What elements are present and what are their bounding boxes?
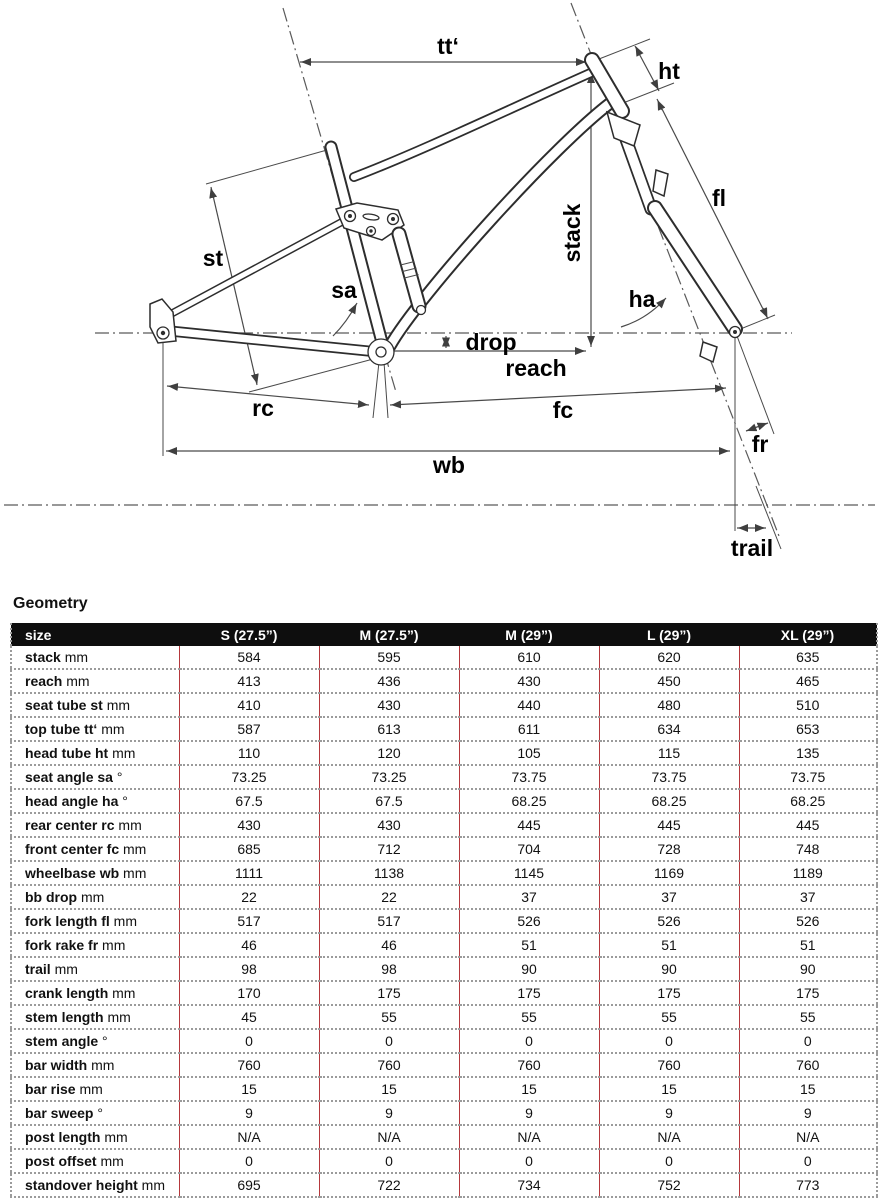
table-row: standover height mm695722734752773 (11, 1173, 877, 1197)
cell-value: 620 (599, 646, 739, 669)
dimension-lines (163, 39, 781, 549)
table-row: seat angle sa °73.2573.2573.7573.7573.75 (11, 765, 877, 789)
cell-value: 510 (739, 693, 877, 717)
column-header: S (27.5”) (179, 623, 319, 646)
row-label: fork rake fr mm (11, 933, 179, 957)
cell-value: 175 (599, 981, 739, 1005)
label-stack: stack (559, 203, 585, 262)
cell-value: 55 (319, 1005, 459, 1029)
shock-eyelet (417, 306, 426, 315)
table-row: crank length mm170175175175175 (11, 981, 877, 1005)
cell-value: 0 (179, 1149, 319, 1173)
cell-value: 734 (459, 1173, 599, 1197)
cell-value: 15 (599, 1077, 739, 1101)
table-row: stem angle °00000 (11, 1029, 877, 1053)
cell-value: 170 (179, 981, 319, 1005)
cell-value: 440 (459, 693, 599, 717)
table-row: post length mmN/AN/AN/AN/AN/A (11, 1125, 877, 1149)
table-row: head angle ha °67.567.568.2568.2568.25 (11, 789, 877, 813)
cell-value: 55 (739, 1005, 877, 1029)
cell-value: 0 (319, 1029, 459, 1053)
cell-value: 595 (319, 646, 459, 669)
cell-value: 105 (459, 741, 599, 765)
cell-value: 73.25 (319, 765, 459, 789)
cell-value: 722 (319, 1173, 459, 1197)
cell-value: 55 (599, 1005, 739, 1029)
cell-value: 430 (319, 693, 459, 717)
cell-value: 46 (319, 933, 459, 957)
row-label: fork length fl mm (11, 909, 179, 933)
row-label: head angle ha ° (11, 789, 179, 813)
cell-value: N/A (179, 1125, 319, 1149)
bike-geometry-drawing: tt‘ ht fl stack st sa ha drop reach rc f… (0, 0, 878, 585)
cell-value: 517 (319, 909, 459, 933)
cell-value: 9 (179, 1101, 319, 1125)
cell-value: 90 (459, 957, 599, 981)
cell-value: 413 (179, 669, 319, 693)
cell-value: 526 (739, 909, 877, 933)
cell-value: 748 (739, 837, 877, 861)
table-row: post offset mm00000 (11, 1149, 877, 1173)
cell-value: 1169 (599, 861, 739, 885)
row-label: rear center rc mm (11, 813, 179, 837)
cell-value: 68.25 (739, 789, 877, 813)
cell-value: 445 (459, 813, 599, 837)
table-row: bar rise mm1515151515 (11, 1077, 877, 1101)
cell-value: 9 (319, 1101, 459, 1125)
row-label: standover height mm (11, 1173, 179, 1197)
cell-value: 73.25 (179, 765, 319, 789)
row-label: front center fc mm (11, 837, 179, 861)
column-header: L (29”) (599, 623, 739, 646)
cell-value: 465 (739, 669, 877, 693)
cell-value: 634 (599, 717, 739, 741)
row-label: post length mm (11, 1125, 179, 1149)
label-rear-center: rc (252, 395, 274, 421)
table-row: head tube ht mm110120105115135 (11, 741, 877, 765)
table-body: stack mm584595610620635reach mm413436430… (11, 646, 877, 1197)
cell-value: N/A (459, 1125, 599, 1149)
table-row: bar sweep °99999 (11, 1101, 877, 1125)
cell-value: 760 (739, 1053, 877, 1077)
row-label: post offset mm (11, 1149, 179, 1173)
cell-value: 0 (459, 1149, 599, 1173)
label-trail: trail (731, 535, 773, 561)
row-label: bar width mm (11, 1053, 179, 1077)
cell-value: 0 (599, 1149, 739, 1173)
label-fork-length: fl (712, 185, 726, 211)
cell-value: 0 (179, 1029, 319, 1053)
cell-value: 68.25 (459, 789, 599, 813)
cell-value: 436 (319, 669, 459, 693)
cell-value: 752 (599, 1173, 739, 1197)
cell-value: 526 (459, 909, 599, 933)
cell-value: 445 (599, 813, 739, 837)
cell-value: 728 (599, 837, 739, 861)
cell-value: 55 (459, 1005, 599, 1029)
label-head-tube: ht (658, 58, 680, 84)
cell-value: 98 (179, 957, 319, 981)
cell-value: 712 (319, 837, 459, 861)
cell-value: 1138 (319, 861, 459, 885)
cell-value: 584 (179, 646, 319, 669)
column-header: M (29”) (459, 623, 599, 646)
cell-value: 175 (739, 981, 877, 1005)
table-row: reach mm413436430450465 (11, 669, 877, 693)
cell-value: 45 (179, 1005, 319, 1029)
cell-value: 51 (459, 933, 599, 957)
cell-value: 430 (179, 813, 319, 837)
cell-value: 98 (319, 957, 459, 981)
cell-value: 46 (179, 933, 319, 957)
cell-value: 587 (179, 717, 319, 741)
row-label: trail mm (11, 957, 179, 981)
cell-value: 760 (179, 1053, 319, 1077)
row-label: wheelbase wb mm (11, 861, 179, 885)
column-header: XL (29”) (739, 623, 877, 646)
frame-drawing (150, 60, 741, 365)
table-row: seat tube st mm410430440480510 (11, 693, 877, 717)
label-top-tube: tt‘ (437, 33, 459, 59)
cell-value: 51 (739, 933, 877, 957)
cell-value: 610 (459, 646, 599, 669)
cell-value: 68.25 (599, 789, 739, 813)
cell-value: 15 (739, 1077, 877, 1101)
cell-value: 430 (319, 813, 459, 837)
cell-value: 430 (459, 669, 599, 693)
table-row: fork rake fr mm4646515151 (11, 933, 877, 957)
table-row: stem length mm4555555555 (11, 1005, 877, 1029)
row-label: head tube ht mm (11, 741, 179, 765)
table-row: stack mm584595610620635 (11, 646, 877, 669)
table-row: bb drop mm2222373737 (11, 885, 877, 909)
table-row: top tube tt‘ mm587613611634653 (11, 717, 877, 741)
cell-value: 517 (179, 909, 319, 933)
geometry-diagram: tt‘ ht fl stack st sa ha drop reach rc f… (0, 0, 878, 585)
cell-value: 445 (739, 813, 877, 837)
section-title: Geometry (13, 595, 878, 613)
cell-value: 1111 (179, 861, 319, 885)
cell-value: 773 (739, 1173, 877, 1197)
cell-value: 15 (179, 1077, 319, 1101)
cell-value: N/A (599, 1125, 739, 1149)
cell-value: 22 (319, 885, 459, 909)
row-label: top tube tt‘ mm (11, 717, 179, 741)
table-row: trail mm9898909090 (11, 957, 877, 981)
cell-value: 9 (599, 1101, 739, 1125)
label-seat-tube: st (203, 245, 224, 271)
cell-value: N/A (739, 1125, 877, 1149)
cell-value: 0 (599, 1029, 739, 1053)
cell-value: 480 (599, 693, 739, 717)
cell-value: 22 (179, 885, 319, 909)
cell-value: 90 (739, 957, 877, 981)
cell-value: 685 (179, 837, 319, 861)
column-header-size: size (11, 623, 179, 646)
cell-value: 15 (319, 1077, 459, 1101)
row-label: bb drop mm (11, 885, 179, 909)
cell-value: 760 (599, 1053, 739, 1077)
cell-value: 73.75 (599, 765, 739, 789)
row-label: stem length mm (11, 1005, 179, 1029)
table-row: bar width mm760760760760760 (11, 1053, 877, 1077)
row-label: seat tube st mm (11, 693, 179, 717)
cell-value: 611 (459, 717, 599, 741)
cell-value: 175 (319, 981, 459, 1005)
label-reach: reach (505, 355, 566, 381)
label-drop: drop (465, 329, 516, 355)
cell-value: 67.5 (319, 789, 459, 813)
cell-value: 653 (739, 717, 877, 741)
cell-value: 0 (739, 1029, 877, 1053)
cell-value: 0 (459, 1029, 599, 1053)
table-row: front center fc mm685712704728748 (11, 837, 877, 861)
table-row: rear center rc mm430430445445445 (11, 813, 877, 837)
table-row: wheelbase wb mm11111138114511691189 (11, 861, 877, 885)
cell-value: 704 (459, 837, 599, 861)
cell-value: 450 (599, 669, 739, 693)
row-label: stack mm (11, 646, 179, 669)
cell-value: 37 (739, 885, 877, 909)
table-row: fork length fl mm517517526526526 (11, 909, 877, 933)
cell-value: 0 (739, 1149, 877, 1173)
cell-value: 110 (179, 741, 319, 765)
cell-value: 73.75 (739, 765, 877, 789)
cell-value: 695 (179, 1173, 319, 1197)
cell-value: 760 (459, 1053, 599, 1077)
row-label: seat angle sa ° (11, 765, 179, 789)
cell-value: 67.5 (179, 789, 319, 813)
fork-arch (653, 170, 668, 196)
cell-value: N/A (319, 1125, 459, 1149)
row-label: stem angle ° (11, 1029, 179, 1053)
cell-value: 613 (319, 717, 459, 741)
cell-value: 51 (599, 933, 739, 957)
cell-value: 15 (459, 1077, 599, 1101)
cell-value: 410 (179, 693, 319, 717)
cell-value: 90 (599, 957, 739, 981)
cell-value: 120 (319, 741, 459, 765)
cell-value: 9 (459, 1101, 599, 1125)
cell-value: 1189 (739, 861, 877, 885)
row-label: bar rise mm (11, 1077, 179, 1101)
row-label: bar sweep ° (11, 1101, 179, 1125)
brake-mount (700, 342, 717, 362)
cell-value: 635 (739, 646, 877, 669)
label-seat-angle: sa (331, 277, 357, 303)
geometry-table: sizeS (27.5”)M (27.5”)M (29”)L (29”)XL (… (10, 623, 878, 1198)
cell-value: 175 (459, 981, 599, 1005)
cell-value: 37 (599, 885, 739, 909)
cell-value: 135 (739, 741, 877, 765)
cell-value: 0 (319, 1149, 459, 1173)
row-label: crank length mm (11, 981, 179, 1005)
label-fork-rake: fr (752, 431, 769, 457)
cell-value: 1145 (459, 861, 599, 885)
cell-value: 526 (599, 909, 739, 933)
label-wheelbase: wb (432, 452, 465, 478)
cell-value: 9 (739, 1101, 877, 1125)
row-label: reach mm (11, 669, 179, 693)
table-header-row: sizeS (27.5”)M (27.5”)M (29”)L (29”)XL (… (11, 623, 877, 646)
dimension-labels: tt‘ ht fl stack st sa ha drop reach rc f… (203, 33, 773, 561)
cell-value: 760 (319, 1053, 459, 1077)
column-header: M (27.5”) (319, 623, 459, 646)
cell-value: 37 (459, 885, 599, 909)
cell-value: 73.75 (459, 765, 599, 789)
label-head-angle: ha (629, 286, 656, 312)
cell-value: 115 (599, 741, 739, 765)
label-front-center: fc (553, 397, 574, 423)
